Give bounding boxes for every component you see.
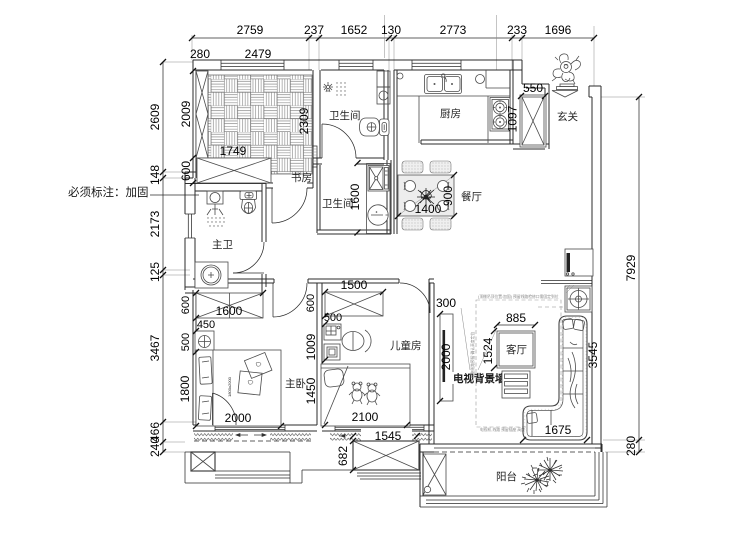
svg-text:600: 600 [305, 294, 317, 312]
svg-text:3467: 3467 [148, 334, 162, 361]
svg-text:900: 900 [441, 186, 455, 206]
svg-text:2009: 2009 [179, 100, 193, 127]
svg-text:玄关: 玄关 [557, 110, 578, 123]
svg-text:厨房: 厨房 [440, 107, 461, 120]
svg-text:2609: 2609 [148, 103, 162, 130]
svg-text:1696: 1696 [545, 23, 572, 37]
svg-text:书房: 书房 [291, 171, 312, 184]
svg-text:2000: 2000 [439, 343, 453, 370]
svg-text:2479: 2479 [245, 47, 272, 61]
svg-text:280: 280 [624, 436, 638, 456]
svg-text:7929: 7929 [624, 254, 638, 281]
svg-text:主卫: 主卫 [212, 239, 233, 251]
svg-text:1675: 1675 [545, 423, 572, 437]
svg-text:500: 500 [180, 333, 192, 351]
svg-text:1600: 1600 [216, 304, 243, 318]
svg-text:125: 125 [148, 262, 162, 282]
svg-text:148: 148 [148, 165, 162, 185]
svg-text:1749: 1749 [220, 144, 247, 158]
svg-text:2309: 2309 [297, 107, 311, 134]
svg-text:280: 280 [190, 47, 210, 61]
svg-text:1652: 1652 [341, 23, 368, 37]
svg-text:1600: 1600 [348, 183, 362, 210]
svg-text:客厅: 客厅 [506, 343, 527, 356]
svg-text:1450: 1450 [304, 377, 318, 404]
svg-text:300: 300 [436, 296, 456, 310]
svg-text:2773: 2773 [440, 23, 467, 37]
svg-text:2000: 2000 [225, 411, 252, 425]
svg-text:550: 550 [523, 81, 543, 95]
svg-text:130: 130 [381, 23, 401, 37]
svg-text:885: 885 [506, 311, 526, 325]
svg-text:240: 240 [148, 437, 162, 457]
svg-text:1400: 1400 [415, 202, 442, 216]
svg-text:阳台: 阳台 [496, 470, 517, 483]
svg-text:2173: 2173 [148, 210, 162, 237]
svg-text:插座线路预留 确认高度定位: 插座线路预留 确认高度定位 [470, 331, 475, 378]
svg-text:儿童房: 儿童房 [390, 339, 422, 352]
svg-text:1800: 1800 [178, 375, 192, 402]
svg-text:2100: 2100 [352, 410, 379, 424]
svg-text:233: 233 [507, 23, 527, 37]
svg-text:237: 237 [304, 23, 324, 37]
svg-text:必须标注：加固: 必须标注：加固 [68, 185, 149, 199]
svg-text:600: 600 [180, 296, 192, 314]
svg-text:1500: 1500 [341, 278, 368, 292]
svg-text:2759: 2759 [237, 23, 264, 37]
svg-text:600: 600 [179, 161, 193, 181]
svg-text:3545: 3545 [586, 341, 600, 368]
svg-text:餐厅: 餐厅 [461, 190, 482, 203]
svg-text:682: 682 [336, 446, 350, 466]
svg-text:1524: 1524 [481, 337, 495, 364]
svg-text:(顶棚吊顶位置:加固) 预留线路检修口需固定到位: (顶棚吊顶位置:加固) 预留线路检修口需固定到位 [478, 294, 559, 299]
svg-text:450: 450 [197, 319, 215, 331]
svg-text:1097: 1097 [506, 105, 520, 132]
svg-text:1800x2000: 1800x2000 [227, 376, 232, 397]
svg-text:1009: 1009 [304, 333, 318, 360]
svg-text:卫生间: 卫生间 [329, 109, 361, 122]
svg-text:电视背景墙: 电视背景墙 [453, 372, 506, 385]
